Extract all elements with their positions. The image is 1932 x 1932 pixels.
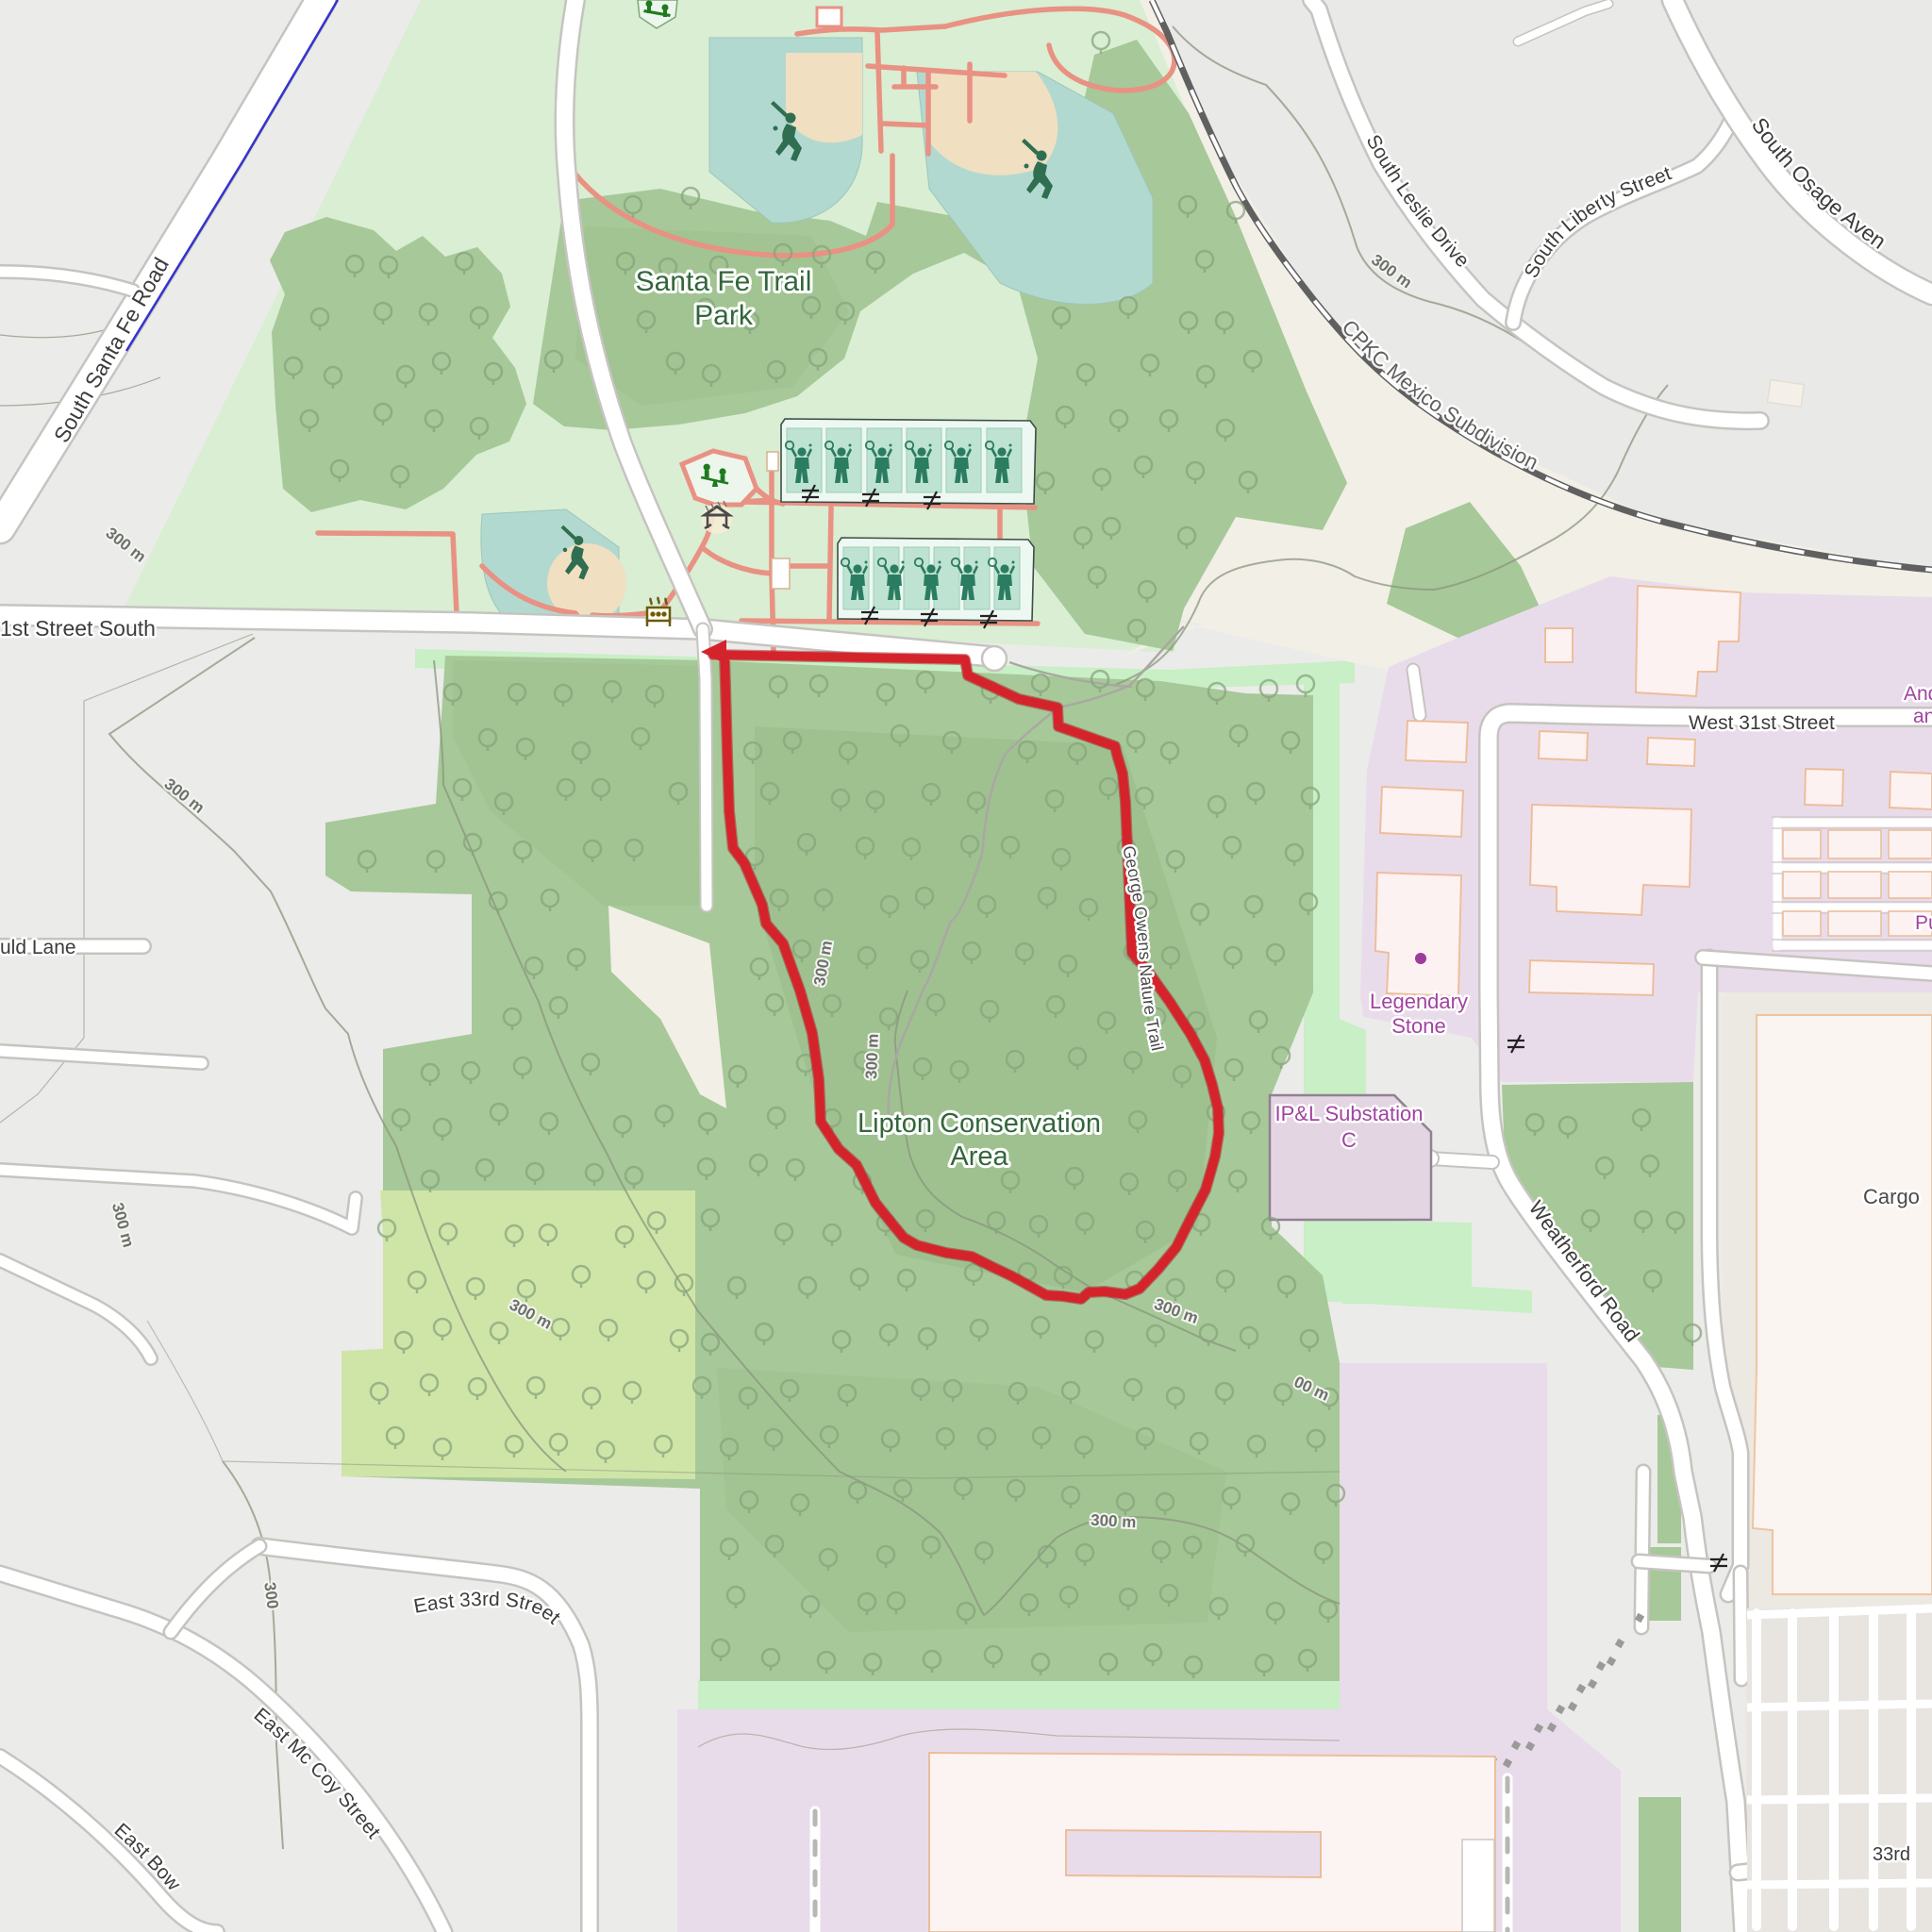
svg-text:Cargo: Cargo — [1863, 1185, 1920, 1208]
svg-text:300 m: 300 m — [862, 1033, 882, 1079]
svg-text:Area: Area — [950, 1141, 1008, 1172]
svg-text:IP&L Substation: IP&L Substation — [1275, 1102, 1424, 1125]
svg-text:Santa Fe Trail: Santa Fe Trail — [636, 266, 812, 297]
svg-text:C: C — [1341, 1128, 1357, 1152]
svg-text:300 m: 300 m — [1091, 1511, 1137, 1531]
svg-text:Legendary: Legendary — [1370, 990, 1468, 1013]
svg-text:Pub: Pub — [1915, 912, 1932, 934]
svg-text:300: 300 — [260, 1581, 281, 1609]
svg-text:an: an — [1913, 706, 1932, 727]
svg-text:uld Lane: uld Lane — [0, 937, 76, 958]
svg-text:And: And — [1904, 683, 1932, 705]
svg-text:Lipton Conservation: Lipton Conservation — [858, 1108, 1101, 1139]
svg-text:West 31st Street: West 31st Street — [1689, 712, 1835, 734]
svg-text:Stone: Stone — [1391, 1014, 1446, 1038]
svg-text:1st Street South: 1st Street South — [0, 616, 156, 641]
svg-text:Park: Park — [694, 300, 754, 331]
svg-text:33rd: 33rd — [1873, 1844, 1910, 1865]
